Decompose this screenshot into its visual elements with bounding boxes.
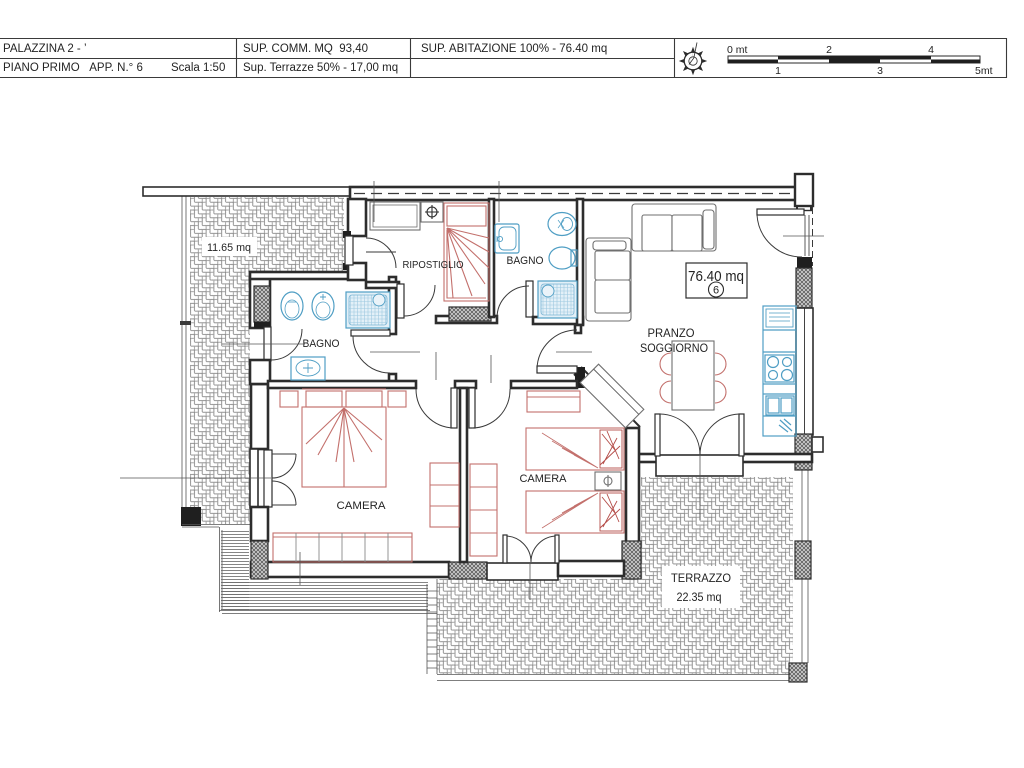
svg-text:0 mt: 0 mt — [727, 44, 748, 56]
svg-text:SUP. COMM. MQ 93,40: SUP. COMM. MQ 93,40 — [243, 43, 368, 55]
svg-text:Sup. Terrazze 50% - 17,00 mq: Sup. Terrazze 50% - 17,00 mq — [243, 62, 398, 74]
svg-text:6: 6 — [713, 285, 719, 297]
svg-text:CAMERA: CAMERA — [337, 500, 387, 512]
svg-text:PIANO PRIMO APP. N.° 6: PIANO PRIMO APP. N.° 6 — [3, 62, 143, 74]
svg-text:SUP. ABITAZIONE 100% - 76.40 m: SUP. ABITAZIONE 100% - 76.40 mq — [421, 43, 607, 55]
svg-text:3: 3 — [877, 65, 883, 77]
svg-text:PRANZO: PRANZO — [648, 328, 695, 340]
svg-text:TERRAZZO: TERRAZZO — [671, 573, 731, 585]
svg-text:2: 2 — [826, 44, 832, 56]
svg-text:1: 1 — [775, 65, 781, 77]
svg-text:RIPOSTIGLIO: RIPOSTIGLIO — [403, 259, 464, 271]
svg-text:CAMERA: CAMERA — [520, 473, 568, 485]
svg-text:SOGGIORNO: SOGGIORNO — [640, 343, 708, 355]
svg-text:22.35 mq: 22.35 mq — [677, 592, 722, 604]
svg-text:BAGNO: BAGNO — [507, 255, 544, 267]
svg-text:BAGNO: BAGNO — [303, 338, 340, 350]
svg-text:Scala 1:50: Scala 1:50 — [171, 62, 225, 74]
svg-text:5mt: 5mt — [975, 65, 993, 77]
svg-text:11.65 mq: 11.65 mq — [207, 242, 251, 254]
svg-text:4: 4 — [928, 44, 934, 56]
svg-text:PALAZZINA 2 - ’: PALAZZINA 2 - ’ — [3, 43, 87, 55]
